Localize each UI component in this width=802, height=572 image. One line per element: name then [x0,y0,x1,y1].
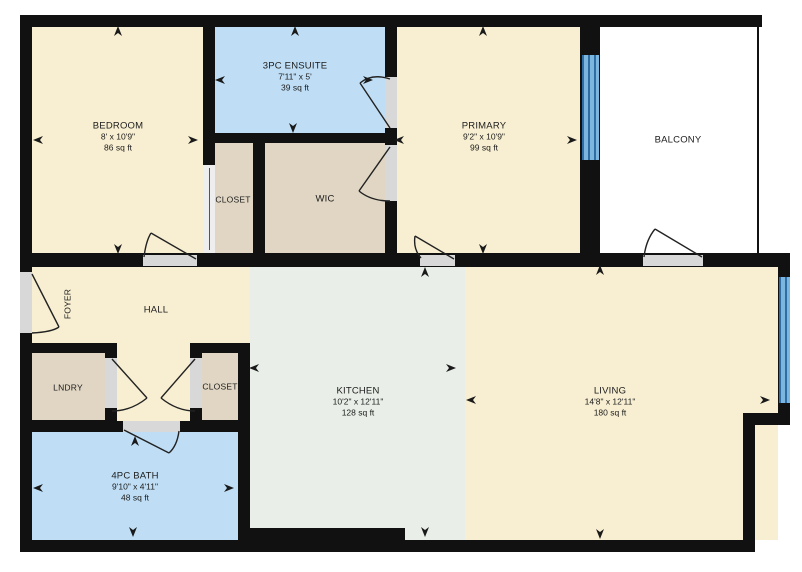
room-area: 99 sq ft [462,143,507,154]
room-name: HALL [144,305,169,316]
foyer-label: FOYER [63,289,74,319]
primary-door-opening [420,255,455,266]
ensuite-door-opening [385,77,397,128]
wall-ensuite-right [385,27,397,253]
wall-kitchen-bottom [238,528,405,540]
room-name: CLOSET [202,382,237,393]
room-dims: 14'8" x 12'11" [585,397,636,408]
room-dims: 7'11" x 5' [263,72,328,83]
room-corridor [117,343,190,432]
room-name: WIC [315,194,334,205]
room-dims: 8' x 10'9" [93,132,144,143]
closet-lower-label: CLOSET [202,382,237,393]
bedroom-door-opening [143,255,197,266]
room-name: BEDROOM [93,121,144,132]
lndry-door-opening [105,358,117,408]
room-area: 180 sq ft [585,408,636,419]
primary-label: PRIMARY 9'2" x 10'9" 99 sq ft [462,121,507,154]
room-name: 4PC BATH [111,471,158,482]
wall-kitchen-left [238,343,250,540]
wall-closet-wic [253,143,265,253]
wall-lndry-bottom [20,420,117,432]
bath-door-opening [123,421,180,432]
room-dims: 10'2" x 12'11" [333,397,384,408]
wall-closet-lower-bottom [190,420,250,432]
kitchen-label: KITCHEN 10'2" x 12'11" 128 sq ft [333,386,384,419]
balcony-label: BALCONY [655,135,702,146]
room-name: LIVING [585,386,636,397]
room-name: 3PC ENSUITE [263,61,328,72]
room-area: 48 sq ft [111,493,158,504]
room-dims: 9'2" x 10'9" [462,132,507,143]
room-area: 39 sq ft [263,83,328,94]
balcony-railing [757,25,759,255]
bedroom-label: BEDROOM 8' x 10'9" 86 sq ft [93,121,144,154]
living-label: LIVING 14'8" x 12'11" 180 sq ft [585,386,636,419]
wall-lndry-top [20,343,117,353]
room-name: KITCHEN [333,386,384,397]
closet-upper-label: CLOSET [215,195,250,206]
room-area: 86 sq ft [93,143,144,154]
room-name: FOYER [63,289,74,319]
wall-top [20,15,762,27]
bath-label: 4PC BATH 9'10" x 4'11" 48 sq ft [111,471,158,504]
closet-upper-sliding-door [203,165,215,253]
wall-notch-v [743,413,755,552]
room-name: PRIMARY [462,121,507,132]
room-name: LNDRY [53,383,83,394]
room-area: 128 sq ft [333,408,384,419]
primary-balcony-window [582,55,599,160]
wic-label: WIC [315,194,334,205]
balcony-door-opening [643,255,703,266]
closet-lower-door-opening [190,358,202,408]
living-window [779,277,790,403]
room-name: BALCONY [655,135,702,146]
lndry-label: LNDRY [53,383,83,394]
wic-door-opening [385,145,397,201]
wall-ensuite-bottom [215,133,385,143]
wall-bottom [20,540,755,552]
ensuite-label: 3PC ENSUITE 7'11" x 5' 39 sq ft [263,61,328,94]
entry-door-opening [20,272,32,333]
floor-plan: BEDROOM 8' x 10'9" 86 sq ft 3PC ENSUITE … [0,0,802,572]
room-name: CLOSET [215,195,250,206]
hall-label: HALL [144,305,169,316]
room-dims: 9'10" x 4'11" [111,482,158,493]
